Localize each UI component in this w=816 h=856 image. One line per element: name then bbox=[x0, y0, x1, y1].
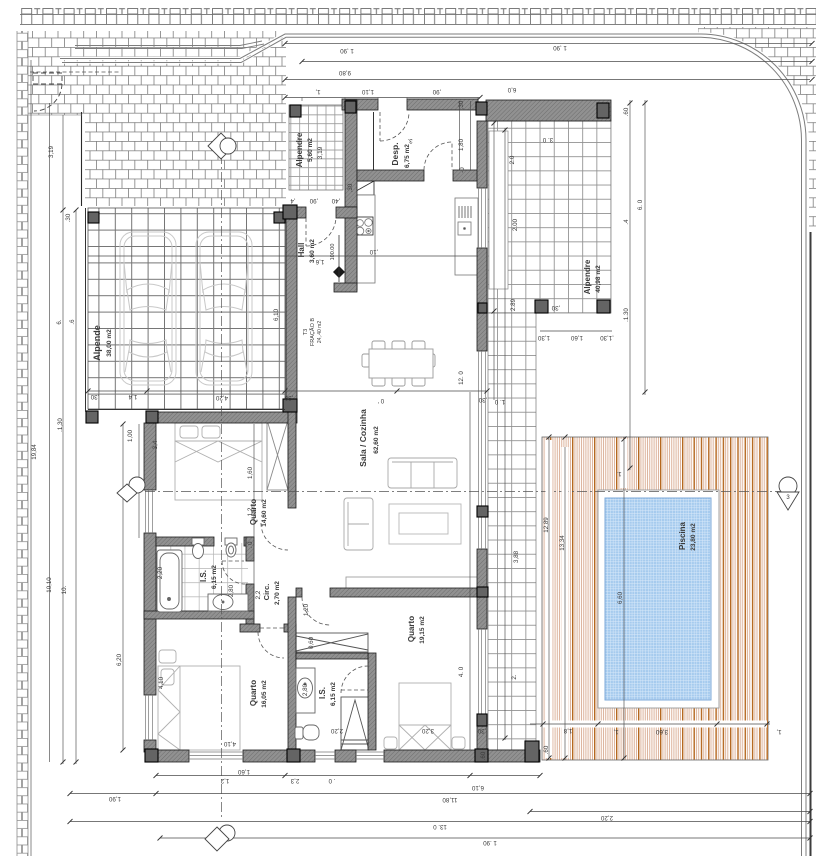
svg-text:6. 0: 6. 0 bbox=[637, 199, 644, 210]
svg-text:2.89: 2.89 bbox=[510, 298, 517, 311]
svg-text:6.: 6. bbox=[56, 319, 63, 324]
svg-text:0 ': 0 ' bbox=[378, 397, 384, 404]
svg-text:1,20: 1,20 bbox=[303, 603, 310, 616]
svg-text:.30: .30 bbox=[65, 213, 72, 222]
svg-text:6,75 m2: 6,75 m2 bbox=[404, 144, 411, 168]
svg-text:1,80: 1,80 bbox=[458, 138, 465, 151]
svg-text:1,: 1, bbox=[315, 88, 320, 95]
svg-text:,30: ,30 bbox=[551, 304, 560, 311]
svg-text:. 0: . 0 bbox=[247, 541, 254, 548]
svg-text:2,2: 2,2 bbox=[255, 590, 262, 599]
svg-text:,30: ,30 bbox=[458, 100, 465, 109]
svg-text:2,80: 2,80 bbox=[228, 584, 235, 597]
svg-text:Piscina: Piscina bbox=[678, 521, 687, 550]
svg-text:6,10: 6,10 bbox=[273, 308, 280, 321]
svg-text:13. 0: 13. 0 bbox=[433, 823, 447, 830]
svg-text:1,90: 1,90 bbox=[108, 795, 121, 802]
svg-text:24,.40 m2: 24,.40 m2 bbox=[317, 321, 323, 343]
svg-text:2,80: 2,80 bbox=[302, 683, 309, 696]
svg-text:,90: ,90 bbox=[432, 88, 441, 95]
svg-text:I.S.: I.S. bbox=[199, 570, 208, 582]
svg-text:2.00: 2.00 bbox=[512, 218, 519, 231]
svg-text:,4: ,4 bbox=[290, 197, 296, 204]
svg-text:1,4: 1,4 bbox=[128, 393, 137, 400]
svg-text:Sala / Cozinha: Sala / Cozinha bbox=[358, 409, 368, 467]
svg-text:6,60: 6,60 bbox=[617, 591, 624, 604]
svg-text:4,10: 4,10 bbox=[158, 676, 165, 689]
svg-text:1,6: 1,6 bbox=[315, 258, 324, 265]
svg-text:3,88: 3,88 bbox=[513, 550, 520, 563]
svg-text:100.00: 100.00 bbox=[330, 244, 336, 261]
svg-text:2,3: 2,3 bbox=[290, 777, 299, 784]
svg-text:3. 0: 3. 0 bbox=[542, 136, 553, 143]
svg-text:3,60 m2: 3,60 m2 bbox=[309, 239, 316, 263]
svg-text:.4: .4 bbox=[623, 219, 630, 225]
svg-text:1,: 1, bbox=[613, 728, 618, 735]
svg-text:62,60 m2: 62,60 m2 bbox=[373, 426, 380, 454]
svg-text:16,05 m2: 16,05 m2 bbox=[261, 680, 268, 708]
svg-text:3,60: 3,60 bbox=[655, 728, 668, 735]
svg-text:10,10: 10,10 bbox=[46, 577, 53, 593]
svg-text:2,20: 2,20 bbox=[157, 566, 164, 579]
svg-text:1 .90: 1 .90 bbox=[483, 839, 497, 846]
svg-text:1,2: 1,2 bbox=[220, 777, 229, 784]
svg-text:6,20: 6,20 bbox=[116, 653, 123, 666]
svg-text:5,60 m2: 5,60 m2 bbox=[307, 138, 314, 162]
svg-text:10.: 10. bbox=[61, 585, 68, 594]
svg-text:1,60: 1,60 bbox=[247, 466, 254, 479]
svg-text:,30: ,30 bbox=[90, 393, 99, 400]
svg-text:,40: ,40 bbox=[331, 197, 340, 204]
svg-text:. 0: . 0 bbox=[328, 777, 335, 784]
svg-text:,30: ,30 bbox=[477, 727, 486, 734]
svg-text:1,10: 1,10 bbox=[361, 88, 374, 95]
svg-text:Quarto: Quarto bbox=[407, 616, 416, 642]
svg-text:1,: 1, bbox=[776, 728, 781, 735]
svg-text:Desp.: Desp. bbox=[390, 142, 400, 165]
svg-text:Alpende: Alpende bbox=[92, 325, 102, 361]
svg-text:,30: ,30 bbox=[284, 394, 293, 401]
svg-text:0,60: 0,60 bbox=[308, 636, 315, 649]
svg-text:6,15 m2: 6,15 m2 bbox=[211, 565, 218, 589]
svg-text:1,8: 1,8 bbox=[563, 727, 572, 734]
svg-text:2.0: 2.0 bbox=[509, 155, 516, 164]
svg-text:,10: ,10 bbox=[369, 248, 378, 255]
svg-text:3,19: 3,19 bbox=[48, 145, 55, 158]
svg-text:Hall: Hall bbox=[297, 243, 306, 258]
svg-text:1,30: 1,30 bbox=[537, 334, 550, 341]
svg-text:1,00: 1,00 bbox=[127, 429, 134, 442]
svg-text:T3: T3 bbox=[303, 329, 309, 335]
svg-text:FRAÇÃO B: FRAÇÃO B bbox=[309, 318, 316, 346]
svg-text:1.: 1. bbox=[616, 470, 621, 477]
svg-text:Alpendre: Alpendre bbox=[583, 259, 592, 294]
svg-text:I.S.: I.S. bbox=[318, 687, 327, 699]
svg-text:-0: -0 bbox=[459, 167, 466, 173]
svg-text:1 ,90: 1 ,90 bbox=[553, 44, 567, 51]
svg-text:,1,30: ,1,30 bbox=[600, 334, 614, 341]
svg-text:23,80 m2: 23,80 m2 bbox=[690, 523, 697, 551]
svg-text:9,80: 9,80 bbox=[338, 69, 351, 76]
svg-text:12. 0: 12. 0 bbox=[458, 371, 465, 385]
svg-text:.60: .60 bbox=[543, 745, 550, 754]
svg-text:19,84: 19,84 bbox=[31, 444, 38, 460]
svg-text:1,2: 1,2 bbox=[247, 507, 254, 516]
svg-text:4. 0: 4. 0 bbox=[458, 666, 465, 677]
svg-text:.1.30: .1.30 bbox=[623, 308, 630, 322]
svg-text:,30: ,30 bbox=[478, 396, 487, 403]
svg-text:,90: ,90 bbox=[309, 197, 318, 204]
svg-text:.60: .60 bbox=[623, 107, 630, 116]
svg-text:13,34: 13,34 bbox=[559, 535, 566, 551]
svg-text:1. 0: 1. 0 bbox=[494, 398, 505, 405]
svg-text:40,98 m2: 40,98 m2 bbox=[595, 265, 602, 293]
svg-text:12,89: 12,89 bbox=[543, 517, 550, 533]
svg-text:4,10: 4,10 bbox=[223, 740, 236, 747]
svg-text:.6: .6 bbox=[69, 319, 76, 325]
svg-text:2.: 2. bbox=[511, 674, 518, 679]
svg-text:.60: .60 bbox=[480, 751, 487, 760]
svg-text:.1,30: .1,30 bbox=[57, 418, 64, 432]
svg-text:2,20: 2,20 bbox=[330, 727, 343, 734]
svg-text:3,4: 3,4 bbox=[152, 440, 159, 449]
svg-text:3,20: 3,20 bbox=[421, 727, 434, 734]
svg-text:14,60 m2: 14,60 m2 bbox=[261, 499, 268, 527]
svg-text:2,20: 2,20 bbox=[600, 814, 613, 821]
svg-text:38,00 m2: 38,00 m2 bbox=[106, 329, 113, 357]
svg-text:,30: ,30 bbox=[347, 183, 354, 192]
svg-text:3.: 3. bbox=[407, 137, 412, 144]
svg-text:Alpendre: Alpendre bbox=[295, 132, 304, 167]
svg-text:19,15 m2: 19,15 m2 bbox=[419, 616, 426, 644]
svg-text:6,10: 6,10 bbox=[471, 784, 484, 791]
svg-text:6,0: 6,0 bbox=[507, 86, 516, 93]
svg-text:3,19: 3,19 bbox=[317, 146, 324, 159]
svg-text:4,20: 4,20 bbox=[215, 394, 228, 401]
svg-text:1,60: 1,60 bbox=[570, 334, 583, 341]
svg-text:2,70 m2: 2,70 m2 bbox=[274, 581, 281, 605]
svg-text:Circ.: Circ. bbox=[262, 584, 271, 601]
svg-text:11,80: 11,80 bbox=[442, 796, 458, 803]
svg-text:1 ,90: 1 ,90 bbox=[340, 47, 354, 54]
svg-text:1,60: 1,60 bbox=[237, 768, 250, 775]
svg-text:6,15 m2: 6,15 m2 bbox=[330, 682, 337, 706]
svg-text:Quarto: Quarto bbox=[249, 680, 258, 706]
